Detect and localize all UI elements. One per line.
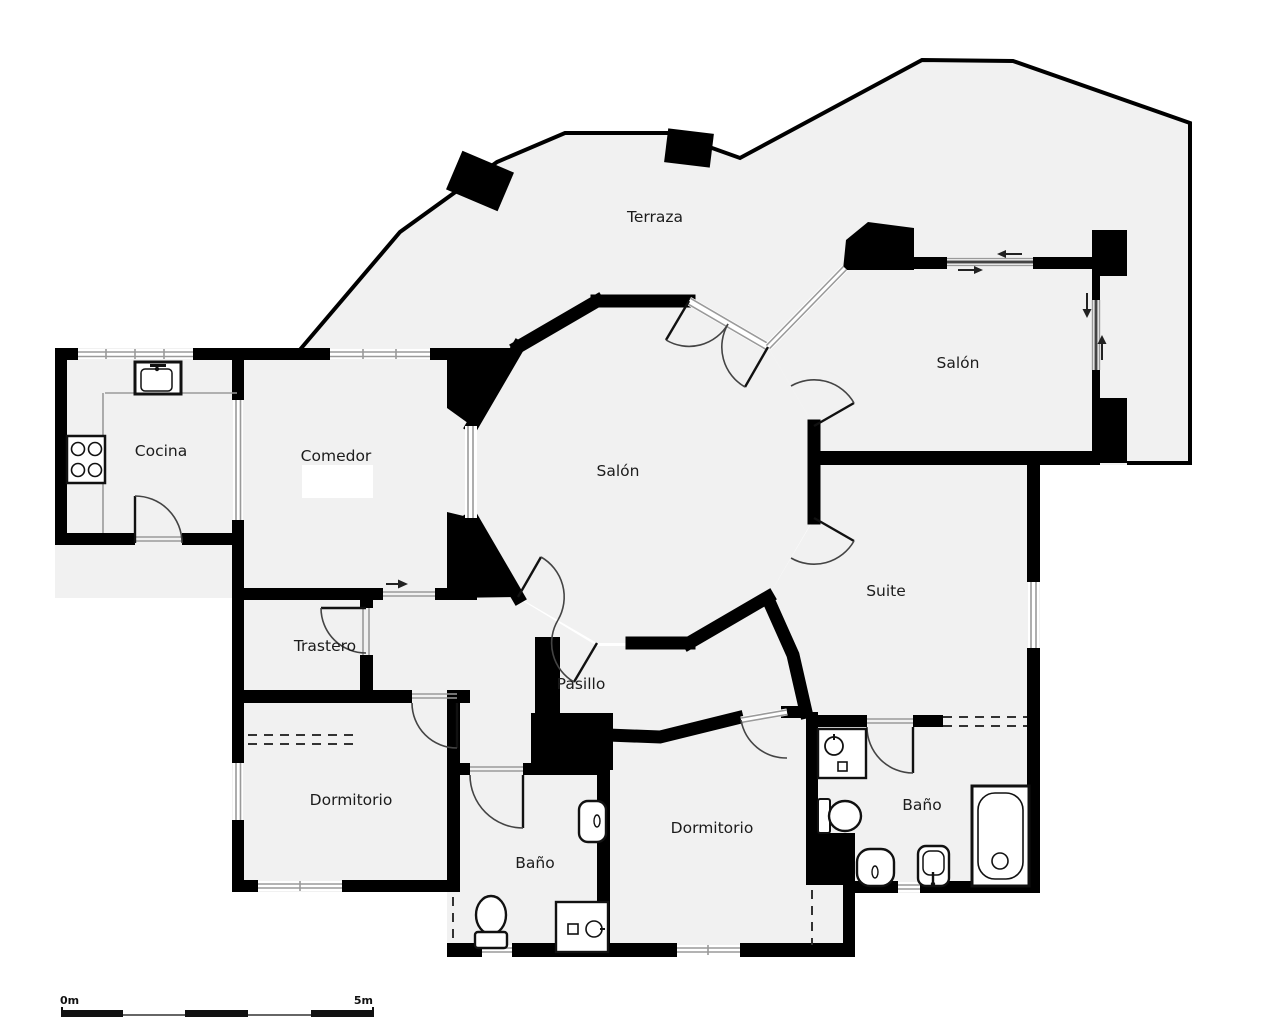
room-label-salon-center: Salón (597, 462, 640, 480)
kitchen-dining-floor (55, 348, 516, 598)
dining-table (302, 465, 373, 498)
room-label-suite: Suite (866, 582, 906, 600)
stove (67, 436, 105, 483)
sliding-door (1091, 300, 1101, 370)
salon-circle-floor (472, 301, 814, 643)
floor-plan-page: Terraza Salón Salón Cocina Comedor Suite… (0, 0, 1280, 1024)
toilet (918, 846, 949, 886)
room-label-comedor: Comedor (301, 447, 372, 465)
washbasin (818, 729, 866, 778)
window (898, 882, 920, 892)
terrace-pillar (664, 128, 714, 167)
room-label-dormitorio-left: Dormitorio (310, 791, 393, 809)
window (78, 349, 193, 359)
room-label-dormitorio-center: Dormitorio (671, 819, 754, 837)
window (330, 349, 430, 359)
room-label-salon-top: Salón (937, 354, 980, 372)
room-label-cocina: Cocina (135, 442, 187, 460)
window (677, 945, 740, 955)
toilet (475, 896, 507, 948)
scale-start-label: 0m (60, 994, 79, 1007)
washbasin (579, 801, 606, 842)
toilet (818, 799, 861, 833)
bidet (857, 849, 894, 886)
scale-end-label: 5m (354, 994, 373, 1007)
kitchen-sink (135, 362, 181, 394)
glass-partition (233, 400, 243, 520)
sliding-door (947, 257, 1033, 267)
glass-partition (465, 426, 477, 518)
room-label-terraza: Terraza (626, 208, 683, 226)
bathtub (972, 786, 1029, 886)
window (258, 881, 342, 891)
scale-bar: 0m 5m (60, 994, 373, 1017)
room-label-pasillo: Pasillo (557, 675, 606, 693)
shower (556, 902, 608, 952)
floor-plan: Terraza Salón Salón Cocina Comedor Suite… (0, 0, 1280, 1024)
room-label-bano-right: Baño (902, 796, 941, 814)
room-label-trastero: Trastero (293, 637, 356, 655)
window (1028, 582, 1039, 648)
window (233, 763, 243, 820)
room-label-bano-left: Baño (515, 854, 554, 872)
